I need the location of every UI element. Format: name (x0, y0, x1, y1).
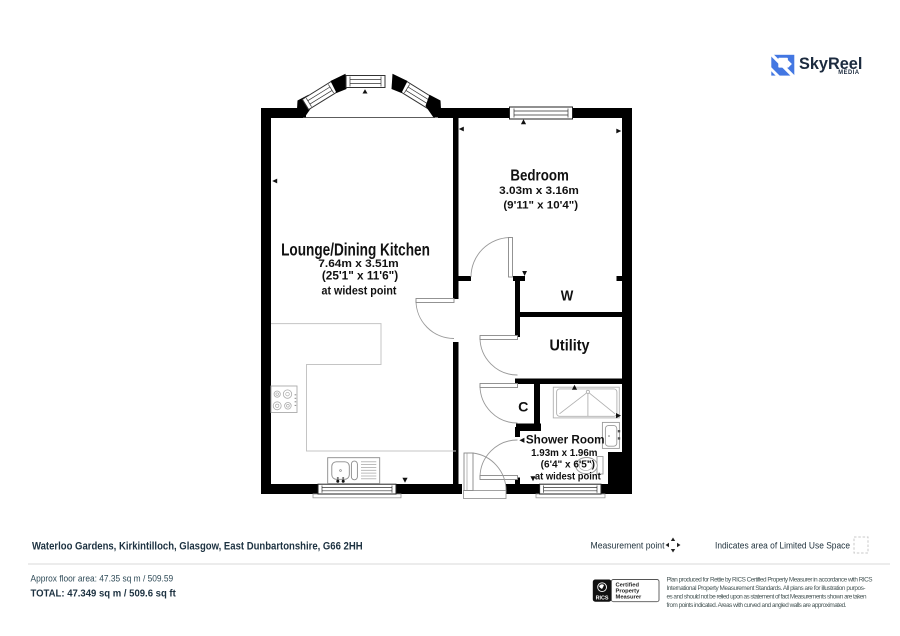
svg-text:Indicates area of Limited Use: Indicates area of Limited Use Space (715, 540, 850, 551)
svg-text:RICS: RICS (596, 596, 609, 602)
svg-text:(6'4" x 6'5"): (6'4" x 6'5") (541, 459, 595, 470)
svg-text:3.03m x 3.16m: 3.03m x 3.16m (499, 185, 579, 197)
svg-text:(25'1" x 11'6"): (25'1" x 11'6") (322, 270, 398, 283)
svg-text:at widest point: at widest point (535, 471, 602, 483)
svg-text:W: W (561, 288, 574, 305)
svg-text:International Property Measur: International Property Measurement Stand… (667, 585, 866, 592)
svg-text:from points indicated. Areas w: from points indicated. Areas with curved… (667, 602, 847, 609)
svg-text:at widest point: at widest point (322, 285, 397, 297)
svg-text:Plan produced for Rettie by RI: Plan produced for Rettie by RICS Certifi… (667, 577, 873, 584)
svg-text:C: C (518, 400, 528, 416)
svg-text:Bedroom: Bedroom (510, 167, 568, 184)
svg-text:7.64m x 3.51m: 7.64m x 3.51m (318, 257, 398, 270)
svg-text:Approx floor area: 47.35 sq m: Approx floor area: 47.35 sq m / 509.59 (31, 573, 174, 584)
svg-text:Measurer: Measurer (616, 594, 643, 600)
svg-text:MEDIA: MEDIA (838, 69, 859, 76)
svg-text:Measurement point: Measurement point (591, 540, 665, 550)
svg-text:Utility: Utility (550, 337, 591, 355)
svg-text:1.93m x 1.96m: 1.93m x 1.96m (531, 448, 598, 459)
svg-text:(9'11" x 10'4"): (9'11" x 10'4") (503, 200, 578, 212)
svg-text:Shower Room: Shower Room (526, 434, 605, 447)
svg-text:TOTAL: 47.349 sq m / 509.6 sq: TOTAL: 47.349 sq m / 509.6 sq ft (31, 588, 177, 600)
svg-text:Waterloo Gardens, Kirkintilloc: Waterloo Gardens, Kirkintilloch, Glasgow… (32, 541, 363, 553)
svg-text:es and should not be relied up: es and should not be relied upon as stat… (667, 594, 867, 601)
